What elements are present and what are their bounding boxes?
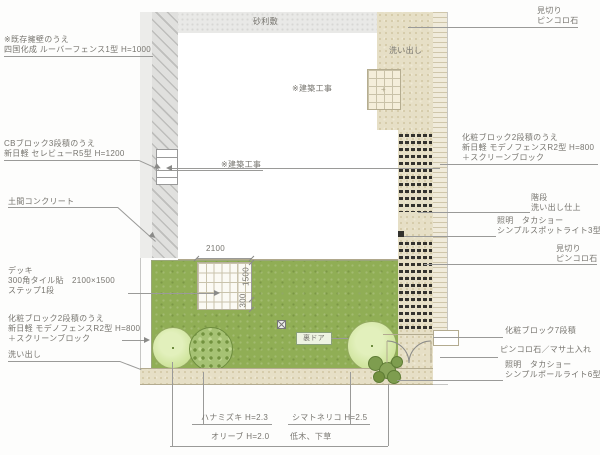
label-block-fence-left-2: 新日軽 モデノフェンスR2型 H=800 — [8, 324, 140, 333]
step-blocks-lower — [399, 242, 432, 332]
leader — [120, 361, 142, 370]
label-washout-left: 洗い出し — [8, 350, 41, 359]
building-label-1: ※建築工事 — [292, 84, 332, 93]
label-mikiri-mid-1: 見切り — [556, 244, 581, 253]
boundary-line-right — [447, 12, 448, 345]
deck-step-dim: 300 — [239, 290, 248, 312]
label-deck-1: デッキ — [8, 266, 33, 275]
leader — [4, 160, 139, 161]
label-olive: オリーブ H=2.0 — [211, 432, 269, 441]
label-deck-3: ステップ1段 — [8, 286, 54, 295]
garden-plan-canvas: 砂利敷 ※建築工事 ※建築工事 洗い出し + 2100 1500 300 裏ドア — [0, 0, 600, 455]
washout-area-label: 洗い出し — [389, 46, 422, 55]
label-polelight-1: 照明 タカショー — [505, 360, 571, 369]
olive-center-dot — [172, 347, 174, 349]
leader — [397, 380, 503, 381]
label-block-fence-right-3: ＋スクリーンブロック — [462, 153, 544, 162]
label-existing-wall-2: 四国化成 ルーバーフェンス1型 H=1000 — [4, 45, 151, 54]
label-block-fence-left-3: ＋スクリーンブロック — [8, 334, 90, 343]
label-pinkoro-masa: ピンコロ石／マサ土入れ — [500, 345, 591, 354]
step-blocks-upper — [399, 134, 432, 212]
label-block-fence-left-1: 化粧ブロック2段積のうえ — [8, 314, 104, 323]
label-deck-2: 300角タイル貼 2100×1500 — [8, 276, 115, 285]
plant-leader — [388, 384, 389, 446]
label-cb-block-2: 新日軽 セレビューR5型 H=1200 — [4, 149, 125, 158]
deck-width-dim: 2100 — [206, 244, 225, 253]
label-stairs-1: 階段 — [531, 193, 548, 202]
shimatoneriko-center-dot — [371, 345, 373, 347]
gate-arcs — [383, 335, 435, 369]
label-mikiri-mid-2: ピンコロ石 — [556, 254, 598, 263]
leader — [128, 293, 216, 294]
leader — [4, 56, 153, 57]
leader — [122, 340, 146, 341]
label-cb-block-1: CBブロック3段積のうえ — [4, 139, 95, 148]
leader — [8, 361, 120, 362]
leader — [408, 27, 578, 28]
leader — [433, 337, 503, 338]
leader-arrow — [214, 290, 220, 296]
label-stairs-2: 洗い出し仕上 — [531, 203, 581, 212]
label-mikiri-top-1: 見切り — [537, 6, 562, 15]
label-spotlight-1: 照明 タカショー — [497, 216, 563, 225]
label-block-fence-right-1: 化粧ブロック2段積のうえ — [462, 133, 558, 142]
right-edge-strip — [433, 12, 447, 345]
leader — [418, 212, 530, 213]
label-shimatoneriko: シマトネリコ H=2.5 — [292, 413, 367, 422]
leader — [440, 357, 498, 358]
label-existing-wall-1: ※既存擁壁のうえ — [4, 35, 69, 44]
label-spotlight-2: シンプルスポットライト3型 — [497, 226, 600, 235]
leader — [440, 164, 598, 165]
leader — [8, 207, 118, 208]
label-doma-concrete: 土間コンクリート — [8, 197, 74, 206]
plant-leader — [172, 362, 173, 446]
leader — [170, 168, 440, 169]
leader — [170, 446, 388, 447]
leader — [424, 264, 597, 265]
building-label-leader — [157, 170, 263, 171]
shrub — [387, 370, 401, 384]
leader — [404, 236, 496, 237]
shrub — [373, 371, 385, 383]
retaining-wall-hatched — [152, 12, 178, 258]
leader — [288, 424, 370, 425]
building-area — [178, 33, 398, 260]
label-mikiri-top-2: ピンコロ石 — [537, 16, 579, 25]
porch-center-mark: + — [381, 85, 386, 94]
gate-pillar — [433, 330, 459, 346]
label-block-7dan: 化粧ブロック7段積 — [505, 326, 576, 335]
leader — [192, 424, 272, 425]
gravel-label: 砂利敷 — [253, 17, 278, 26]
leader-arrow — [166, 165, 172, 171]
label-teiboku: 低木、下草 — [290, 432, 332, 441]
fixture-symbol — [277, 320, 286, 329]
leader-arrow — [144, 337, 150, 343]
deck-height-dimline — [251, 262, 252, 310]
door-label: 裏ドア — [296, 332, 332, 345]
label-hanamizuki: ハナミズキ H=2.3 — [201, 413, 268, 422]
hanamizuki-tree — [189, 327, 233, 371]
label-polelight-2: シンプルポールライト6型 — [505, 370, 600, 379]
label-block-fence-right-2: 新日軽 モデノフェンスR2型 H=800 — [462, 143, 594, 152]
